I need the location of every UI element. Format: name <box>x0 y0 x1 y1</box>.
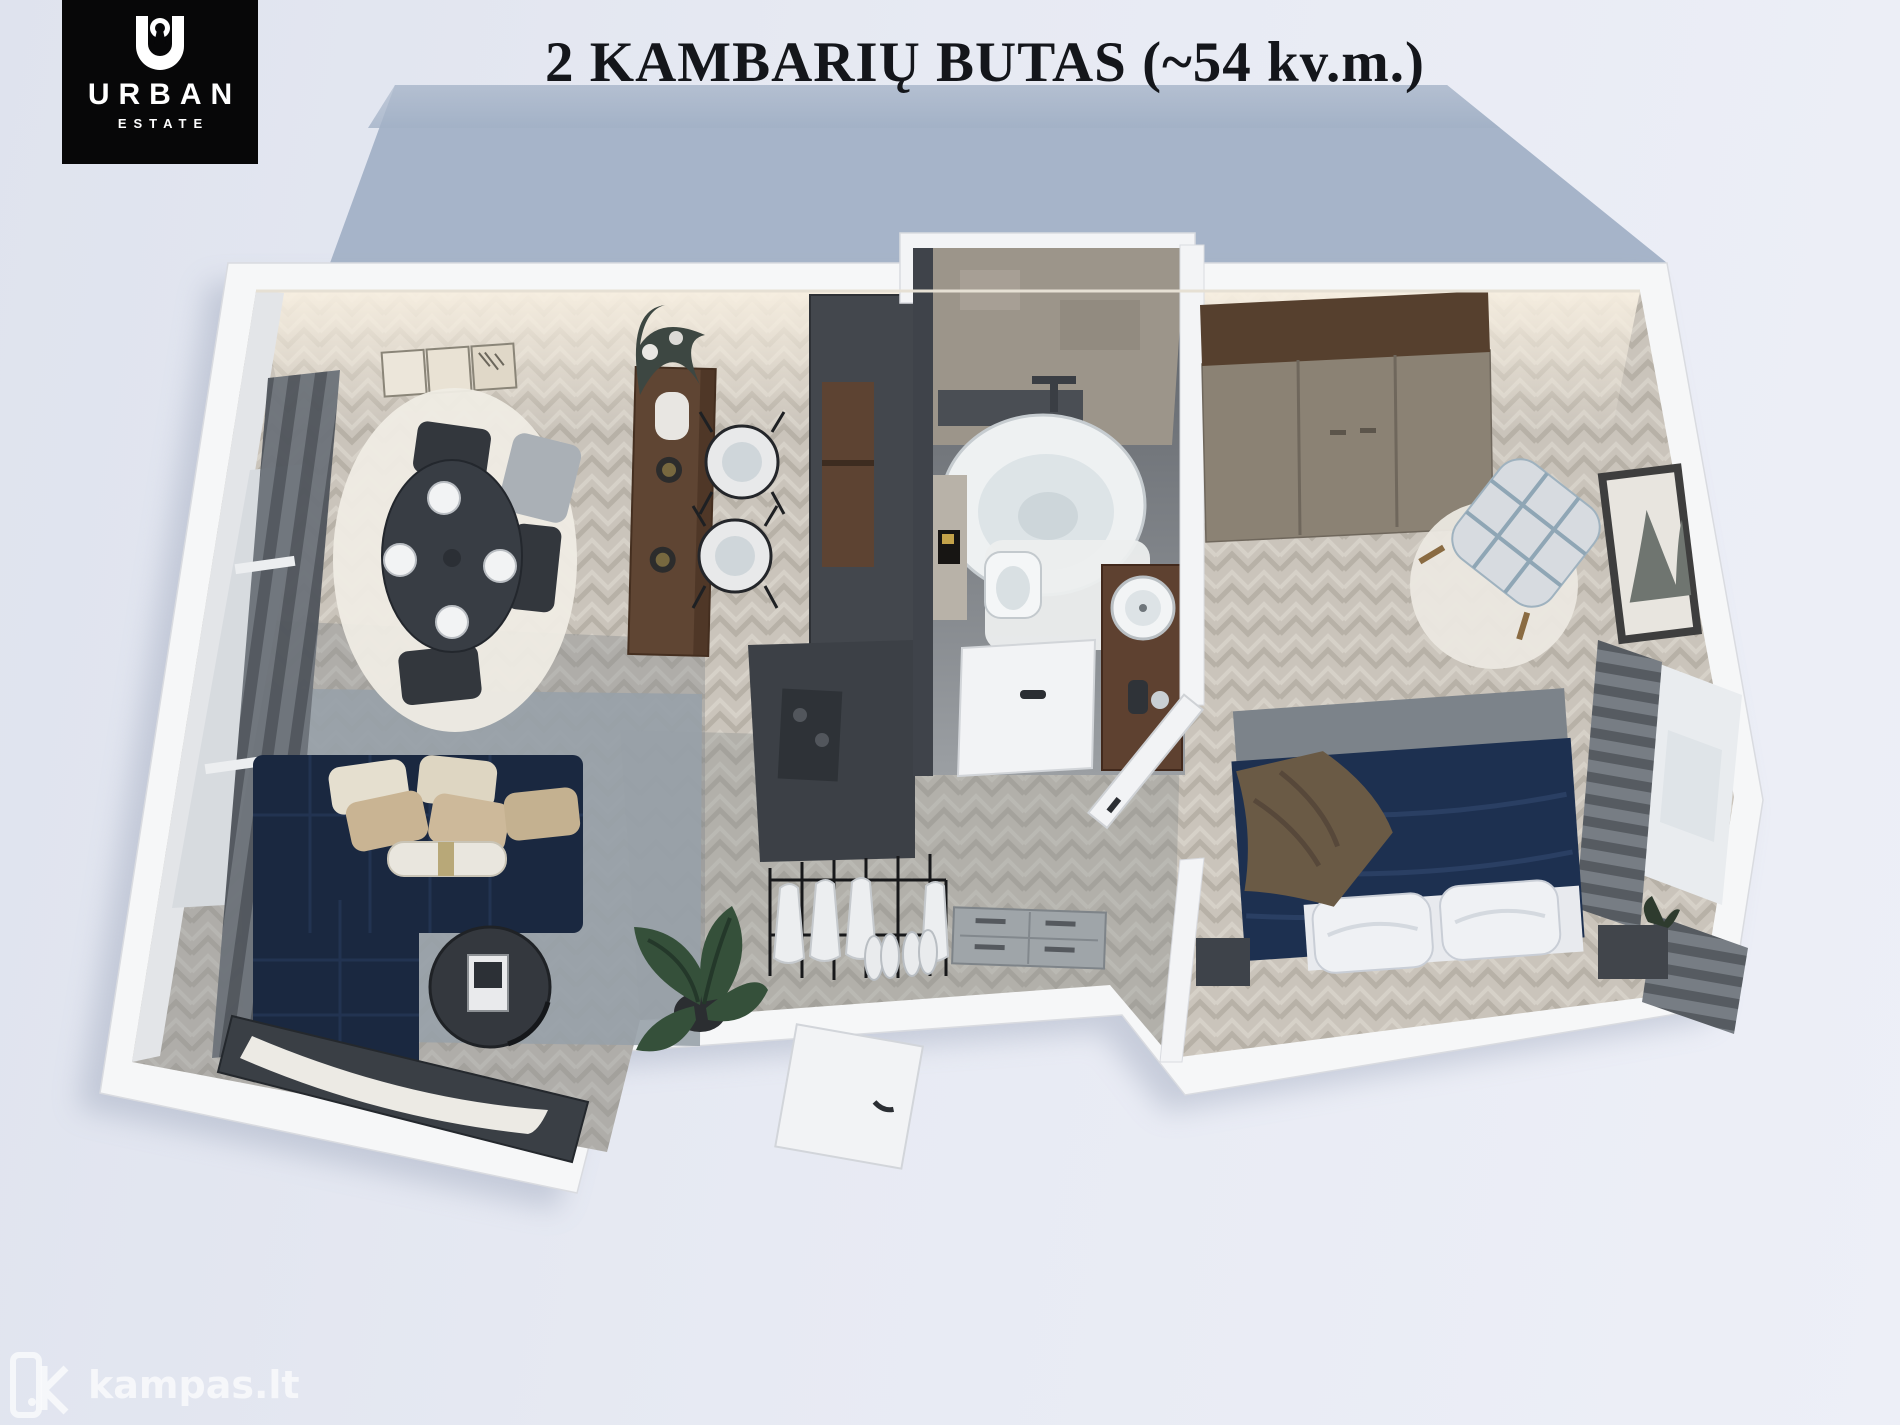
floorplan-render <box>0 0 1900 1425</box>
entry-dresser <box>952 907 1106 968</box>
logo-brand-name: URBAN <box>79 78 241 112</box>
bathroom-door-handle <box>1020 690 1046 699</box>
entry-door <box>775 1024 923 1168</box>
bathroom <box>900 233 1195 776</box>
wardrobe <box>1200 291 1493 542</box>
keyhole-u-icon <box>134 16 186 72</box>
bathroom-door <box>958 640 1095 776</box>
watermark-text: kampas.lt <box>88 1363 300 1407</box>
kampas-watermark: kampas.lt <box>10 1352 300 1418</box>
bidet <box>985 552 1041 618</box>
urban-estate-logo: URBAN ESTATE <box>62 0 258 164</box>
shower-shelf <box>933 475 967 620</box>
coffee-table <box>430 927 550 1047</box>
bed <box>1228 688 1586 979</box>
kampas-house-icon <box>10 1352 74 1418</box>
bed-pillow <box>1439 879 1562 961</box>
window-glass <box>1660 730 1722 842</box>
floorplan-page: URBAN ESTATE 2 KAMBARIŲ BUTAS (~54 kv.m.… <box>0 0 1900 1425</box>
bathtub-water <box>1018 492 1078 540</box>
page-title: 2 KAMBARIŲ BUTAS (~54 kv.m.) <box>460 30 1510 95</box>
logo-brand-sub: ESTATE <box>111 116 209 131</box>
